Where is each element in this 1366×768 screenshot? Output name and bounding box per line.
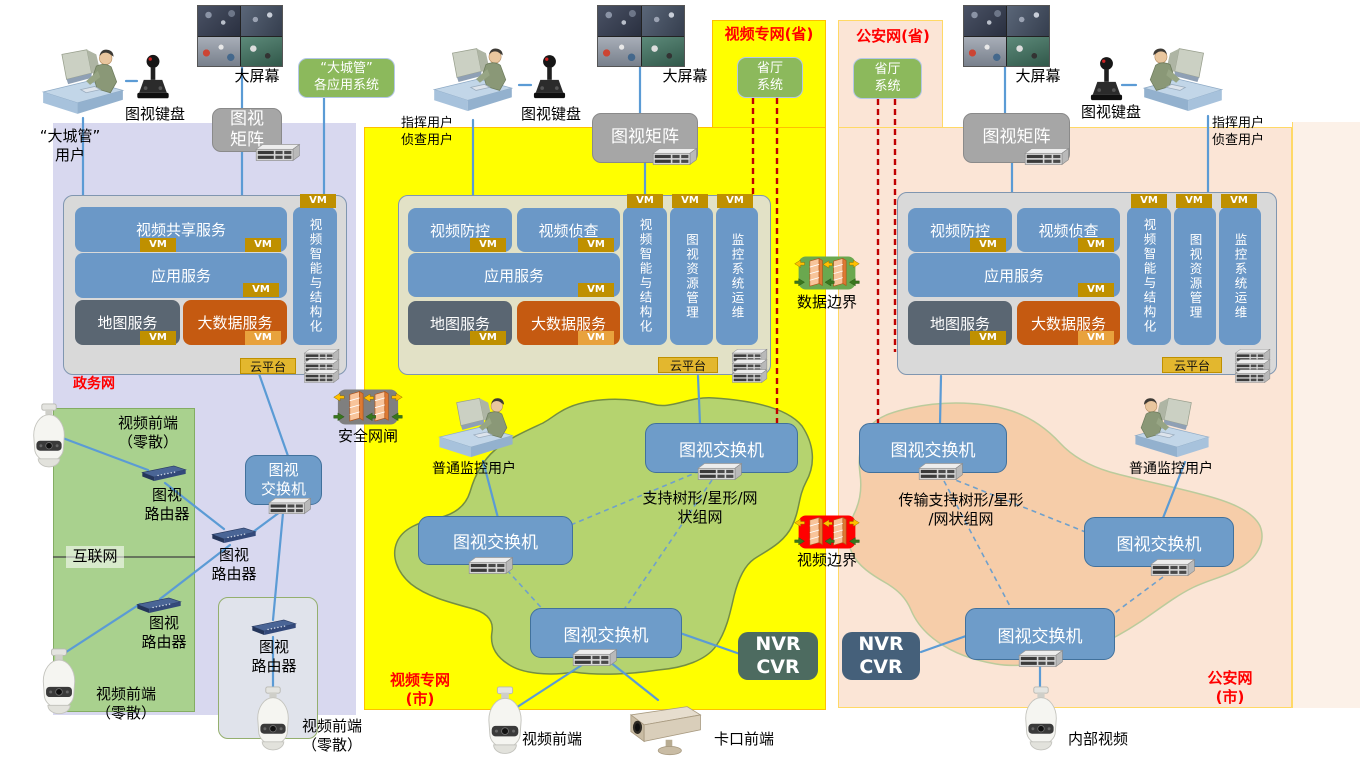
vm-badge: VM: [1176, 194, 1212, 208]
video-keyboard-label: 图视键盘: [512, 106, 590, 124]
data-border-icon: [794, 252, 860, 294]
vm-badge: VM: [970, 331, 1006, 345]
video-front-scattered-label: 视频前端（零散）: [288, 716, 376, 756]
zone-title-video-prov: 视频专网(省): [714, 24, 824, 44]
vm-badge: VM: [1078, 331, 1114, 345]
vm-badge: VM: [470, 238, 506, 252]
video-keyboard-icon: [533, 54, 566, 102]
vm-badge: VM: [970, 238, 1006, 252]
service-ops: 监控系统运维: [716, 207, 758, 345]
dcg-user-label: “大城管”用户: [22, 124, 118, 168]
cloud-platform-badge: 云平台: [658, 357, 718, 373]
server-icon: [1016, 648, 1064, 669]
dome-camera-icon: [480, 686, 530, 762]
video-front-label: 视频前端: [514, 731, 590, 749]
big-screen: [963, 5, 1050, 67]
video-keyboard-icon: [136, 54, 170, 102]
internal-video-label: 内部视频: [1060, 731, 1136, 749]
zone-title-police-city: 公安网(市): [1196, 668, 1264, 708]
normal-monitor-user-icon: [432, 394, 520, 460]
server-icon: [916, 461, 964, 482]
vm-badge: VM: [243, 283, 279, 297]
security-gate-icon: [333, 386, 403, 428]
nvr-cvr-node: NVRCVR: [842, 632, 920, 680]
video-keyboard-label: 图视键盘: [116, 106, 194, 124]
video-keyboard-label: 图视键盘: [1072, 104, 1150, 122]
vm-badge: VM: [1221, 194, 1257, 208]
nvr-cvr-node: NVRCVR: [738, 632, 818, 680]
checkpoint-front-label: 卡口前端: [706, 731, 782, 749]
big-screen-label: 大屏幕: [654, 68, 716, 85]
vm-badge: VM: [627, 194, 663, 208]
data-border-label: 数据边界: [789, 294, 865, 312]
video-front-scattered-label: 视频前端（零散）: [82, 684, 170, 724]
security-gate-label: 安全网闸: [328, 428, 408, 446]
screen-cell: [598, 6, 641, 36]
checkpoint-camera-icon: [622, 700, 706, 758]
normal-monitor-user-icon: [1128, 394, 1216, 460]
server-icon: [695, 461, 743, 482]
server-icon: [253, 142, 301, 163]
video-front-scattered-label: 视频前端（零散）: [104, 413, 192, 453]
screen-cell: [1007, 6, 1049, 36]
vm-badge: VM: [245, 331, 281, 345]
video-router-icon: [141, 460, 187, 485]
video-router-label: 图视路由器: [133, 614, 195, 652]
cmd-user-label: 指挥用户侦查用户: [1198, 116, 1278, 150]
dcg-apps-node: “大城管”各应用系统: [298, 58, 395, 98]
service-res-mgmt: 图视资源管理: [670, 207, 713, 345]
server-icon: [650, 146, 698, 167]
big-screen: [197, 5, 283, 67]
dome-camera-icon: [26, 403, 72, 475]
normal-monitor-user-label: 普通监控用户: [1118, 460, 1224, 478]
vm-badge: VM: [578, 331, 614, 345]
screen-cell: [964, 6, 1006, 36]
screen-cell: [241, 6, 283, 36]
screen-cell: [241, 37, 283, 67]
service-res-mgmt: 图视资源管理: [1174, 207, 1216, 345]
server-icon: [266, 496, 312, 516]
screen-cell: [198, 6, 240, 36]
dome-camera-icon: [1016, 686, 1066, 758]
vm-badge: VM: [470, 331, 506, 345]
service-video-ai: 视频智能与结构化: [623, 207, 667, 345]
province-system-node: 省厅系统: [853, 58, 922, 99]
video-keyboard-icon: [1090, 56, 1123, 104]
dcg-user-icon: [40, 45, 126, 117]
vm-badge: VM: [578, 283, 614, 297]
server-stack-icon: [722, 348, 776, 385]
vm-badge: VM: [1131, 194, 1167, 208]
screen-cell: [642, 37, 685, 67]
screen-cell: [1007, 37, 1049, 67]
server-stack-icon: [1225, 348, 1279, 385]
cloud-platform-badge: 云平台: [240, 358, 296, 374]
zone-title-video-city: 视频专网(市): [378, 670, 462, 710]
cmd-user-icon: [1140, 44, 1226, 114]
vm-badge: VM: [672, 194, 708, 208]
big-screen-label: 大屏幕: [1007, 68, 1069, 85]
service-video-ai: 视频智能与结构化: [1127, 207, 1171, 345]
video-router-label: 图视路由器: [243, 638, 305, 676]
server-icon: [466, 555, 514, 576]
mesh-topology-note: 传输支持树形/星形/网状组网: [884, 490, 1038, 530]
service-video-ai: 视频智能与结构化: [293, 207, 337, 345]
screen-cell: [642, 6, 685, 36]
province-system-node: 省厅系统: [737, 57, 803, 98]
vm-badge: VM: [1078, 283, 1114, 297]
vm-badge: VM: [300, 194, 336, 208]
vm-badge: VM: [578, 238, 614, 252]
network-architecture-diagram: 视频专网(省) 公安网(省) 电子政务网 视频专网(市) 公安网(市) 互联网 …: [0, 0, 1366, 768]
vm-badge: VM: [717, 194, 753, 208]
vm-badge: VM: [245, 238, 281, 252]
cmd-user-label: 指挥用户侦查用户: [388, 116, 466, 150]
screen-cell: [964, 37, 1006, 67]
screen-cell: [198, 37, 240, 67]
cloud-platform-badge: 云平台: [1162, 357, 1222, 373]
vm-badge: VM: [140, 331, 176, 345]
mesh-topology-note: 支持树形/星形/网状组网: [628, 488, 772, 528]
dome-camera-icon: [35, 648, 83, 722]
normal-monitor-user-label: 普通监控用户: [422, 460, 526, 478]
zone-title-police-prov: 公安网(省): [843, 26, 943, 46]
server-icon: [1148, 557, 1196, 578]
video-border-icon: [794, 511, 860, 553]
server-icon: [570, 647, 618, 668]
big-screen-label: 大屏幕: [226, 68, 288, 85]
server-icon: [1022, 146, 1070, 167]
internet-label: 互联网: [66, 546, 124, 568]
video-router-icon: [211, 522, 257, 547]
screen-cell: [598, 37, 641, 67]
video-router-label: 图视路由器: [203, 546, 265, 584]
video-router-icon: [251, 614, 297, 639]
vm-badge: VM: [140, 238, 176, 252]
service-ops: 监控系统运维: [1219, 207, 1261, 345]
cmd-user-icon: [430, 44, 516, 114]
video-border-label: 视频边界: [789, 552, 865, 570]
server-stack-icon: [294, 348, 348, 385]
big-screen: [597, 5, 685, 67]
vm-badge: VM: [1078, 238, 1114, 252]
video-router-label: 图视路由器: [136, 486, 198, 524]
